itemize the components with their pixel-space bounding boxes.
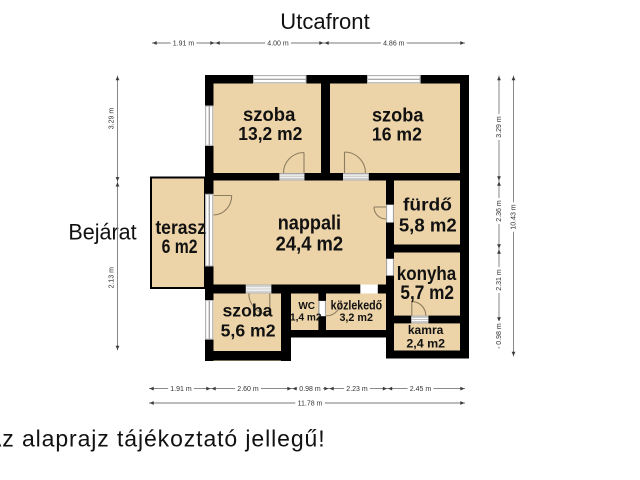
svg-text:2.60 m: 2.60 m — [237, 386, 259, 393]
svg-text:5,8 m2: 5,8 m2 — [399, 215, 457, 235]
svg-text:6 m2: 6 m2 — [162, 237, 198, 258]
svg-text:24,4 m2: 24,4 m2 — [276, 234, 344, 256]
svg-text:kamra: kamra — [408, 325, 444, 337]
svg-text:konyha: konyha — [397, 264, 457, 285]
svg-text:nappali: nappali — [278, 213, 341, 235]
svg-text:5,6 m2: 5,6 m2 — [221, 320, 276, 340]
svg-text:13,2 m2: 13,2 m2 — [238, 124, 302, 144]
svg-text:szoba: szoba — [243, 105, 296, 126]
svg-text:2.36 m: 2.36 m — [496, 200, 503, 222]
svg-text:terasz: terasz — [155, 218, 206, 239]
svg-text:4.00 m: 4.00 m — [267, 41, 289, 48]
svg-text:Az alaprajz tájékoztató jelleg: Az alaprajz tájékoztató jellegű! — [0, 425, 326, 451]
svg-text:2.31 m: 2.31 m — [496, 269, 503, 291]
svg-text:0.98 m: 0.98 m — [299, 386, 321, 393]
svg-text:2.45 m: 2.45 m — [410, 386, 432, 393]
svg-text:WC: WC — [298, 301, 315, 312]
svg-text:Bejárat: Bejárat — [68, 220, 137, 245]
svg-text:11.78 m: 11.78 m — [298, 401, 323, 408]
svg-text:3.29 m: 3.29 m — [108, 108, 115, 130]
svg-text:1.91 m: 1.91 m — [173, 41, 195, 48]
svg-text:16 m2: 16 m2 — [372, 124, 422, 144]
svg-text:1,4 m2: 1,4 m2 — [290, 313, 322, 324]
svg-text:4.86 m: 4.86 m — [383, 41, 405, 48]
svg-text:0.98 m: 0.98 m — [496, 323, 503, 345]
svg-text:5,7 m2: 5,7 m2 — [400, 283, 454, 304]
svg-text:3.29 m: 3.29 m — [496, 116, 503, 138]
svg-text:10.43 m: 10.43 m — [510, 204, 517, 229]
svg-text:2.23 m: 2.23 m — [346, 386, 368, 393]
svg-text:2.13 m: 2.13 m — [108, 267, 115, 289]
svg-text:szoba: szoba — [223, 300, 273, 320]
svg-text:1.91 m: 1.91 m — [170, 386, 192, 393]
svg-text:fürdő: fürdő — [403, 195, 452, 215]
svg-text:3,2 m2: 3,2 m2 — [339, 312, 373, 324]
svg-text:2,4 m2: 2,4 m2 — [406, 337, 445, 351]
svg-text:közlekedő: közlekedő — [331, 298, 383, 313]
svg-text:Utcafront: Utcafront — [280, 9, 370, 34]
